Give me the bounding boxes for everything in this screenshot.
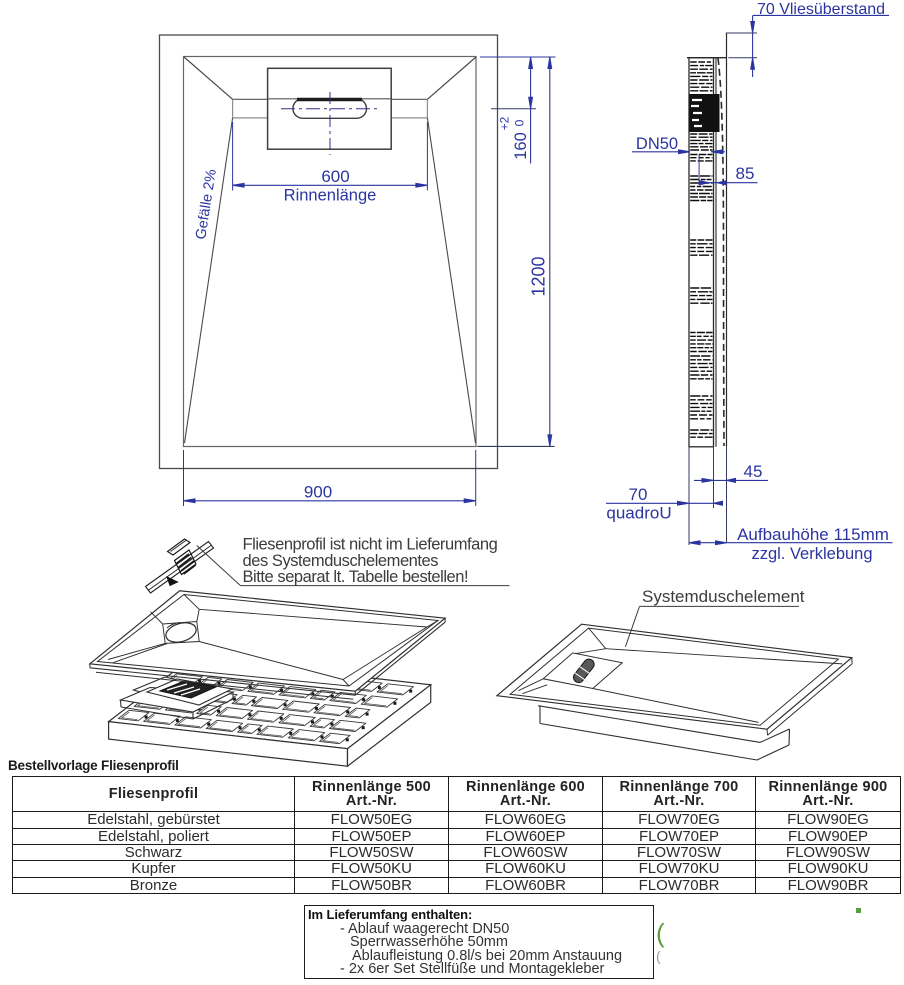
svg-text:+2: +2	[498, 116, 512, 130]
svg-text:zzgl. Verklebung: zzgl. Verklebung	[751, 545, 872, 563]
svg-text:Rinnenlänge: Rinnenlänge	[284, 187, 377, 205]
svg-text:1200: 1200	[529, 256, 549, 296]
svg-text:0: 0	[513, 119, 527, 126]
svg-text:70: 70	[629, 485, 648, 504]
svg-text:45: 45	[744, 462, 763, 481]
svg-text:Fliesenprofil ist nicht im Lie: Fliesenprofil ist nicht im Lieferumfang	[243, 536, 498, 554]
svg-text:quadroU: quadroU	[606, 504, 671, 523]
svg-text:Aufbauhöhe 115mm: Aufbauhöhe 115mm	[737, 525, 889, 544]
svg-text:Bitte separat lt. Tabelle best: Bitte separat lt. Tabelle bestellen!	[243, 568, 469, 586]
svg-text:85: 85	[736, 164, 755, 183]
svg-text:900: 900	[304, 483, 332, 502]
svg-text:DN50: DN50	[636, 135, 678, 153]
svg-text:Systemduschelement: Systemduschelement	[642, 587, 805, 606]
svg-text:600: 600	[321, 167, 349, 186]
svg-text:160: 160	[512, 132, 530, 160]
